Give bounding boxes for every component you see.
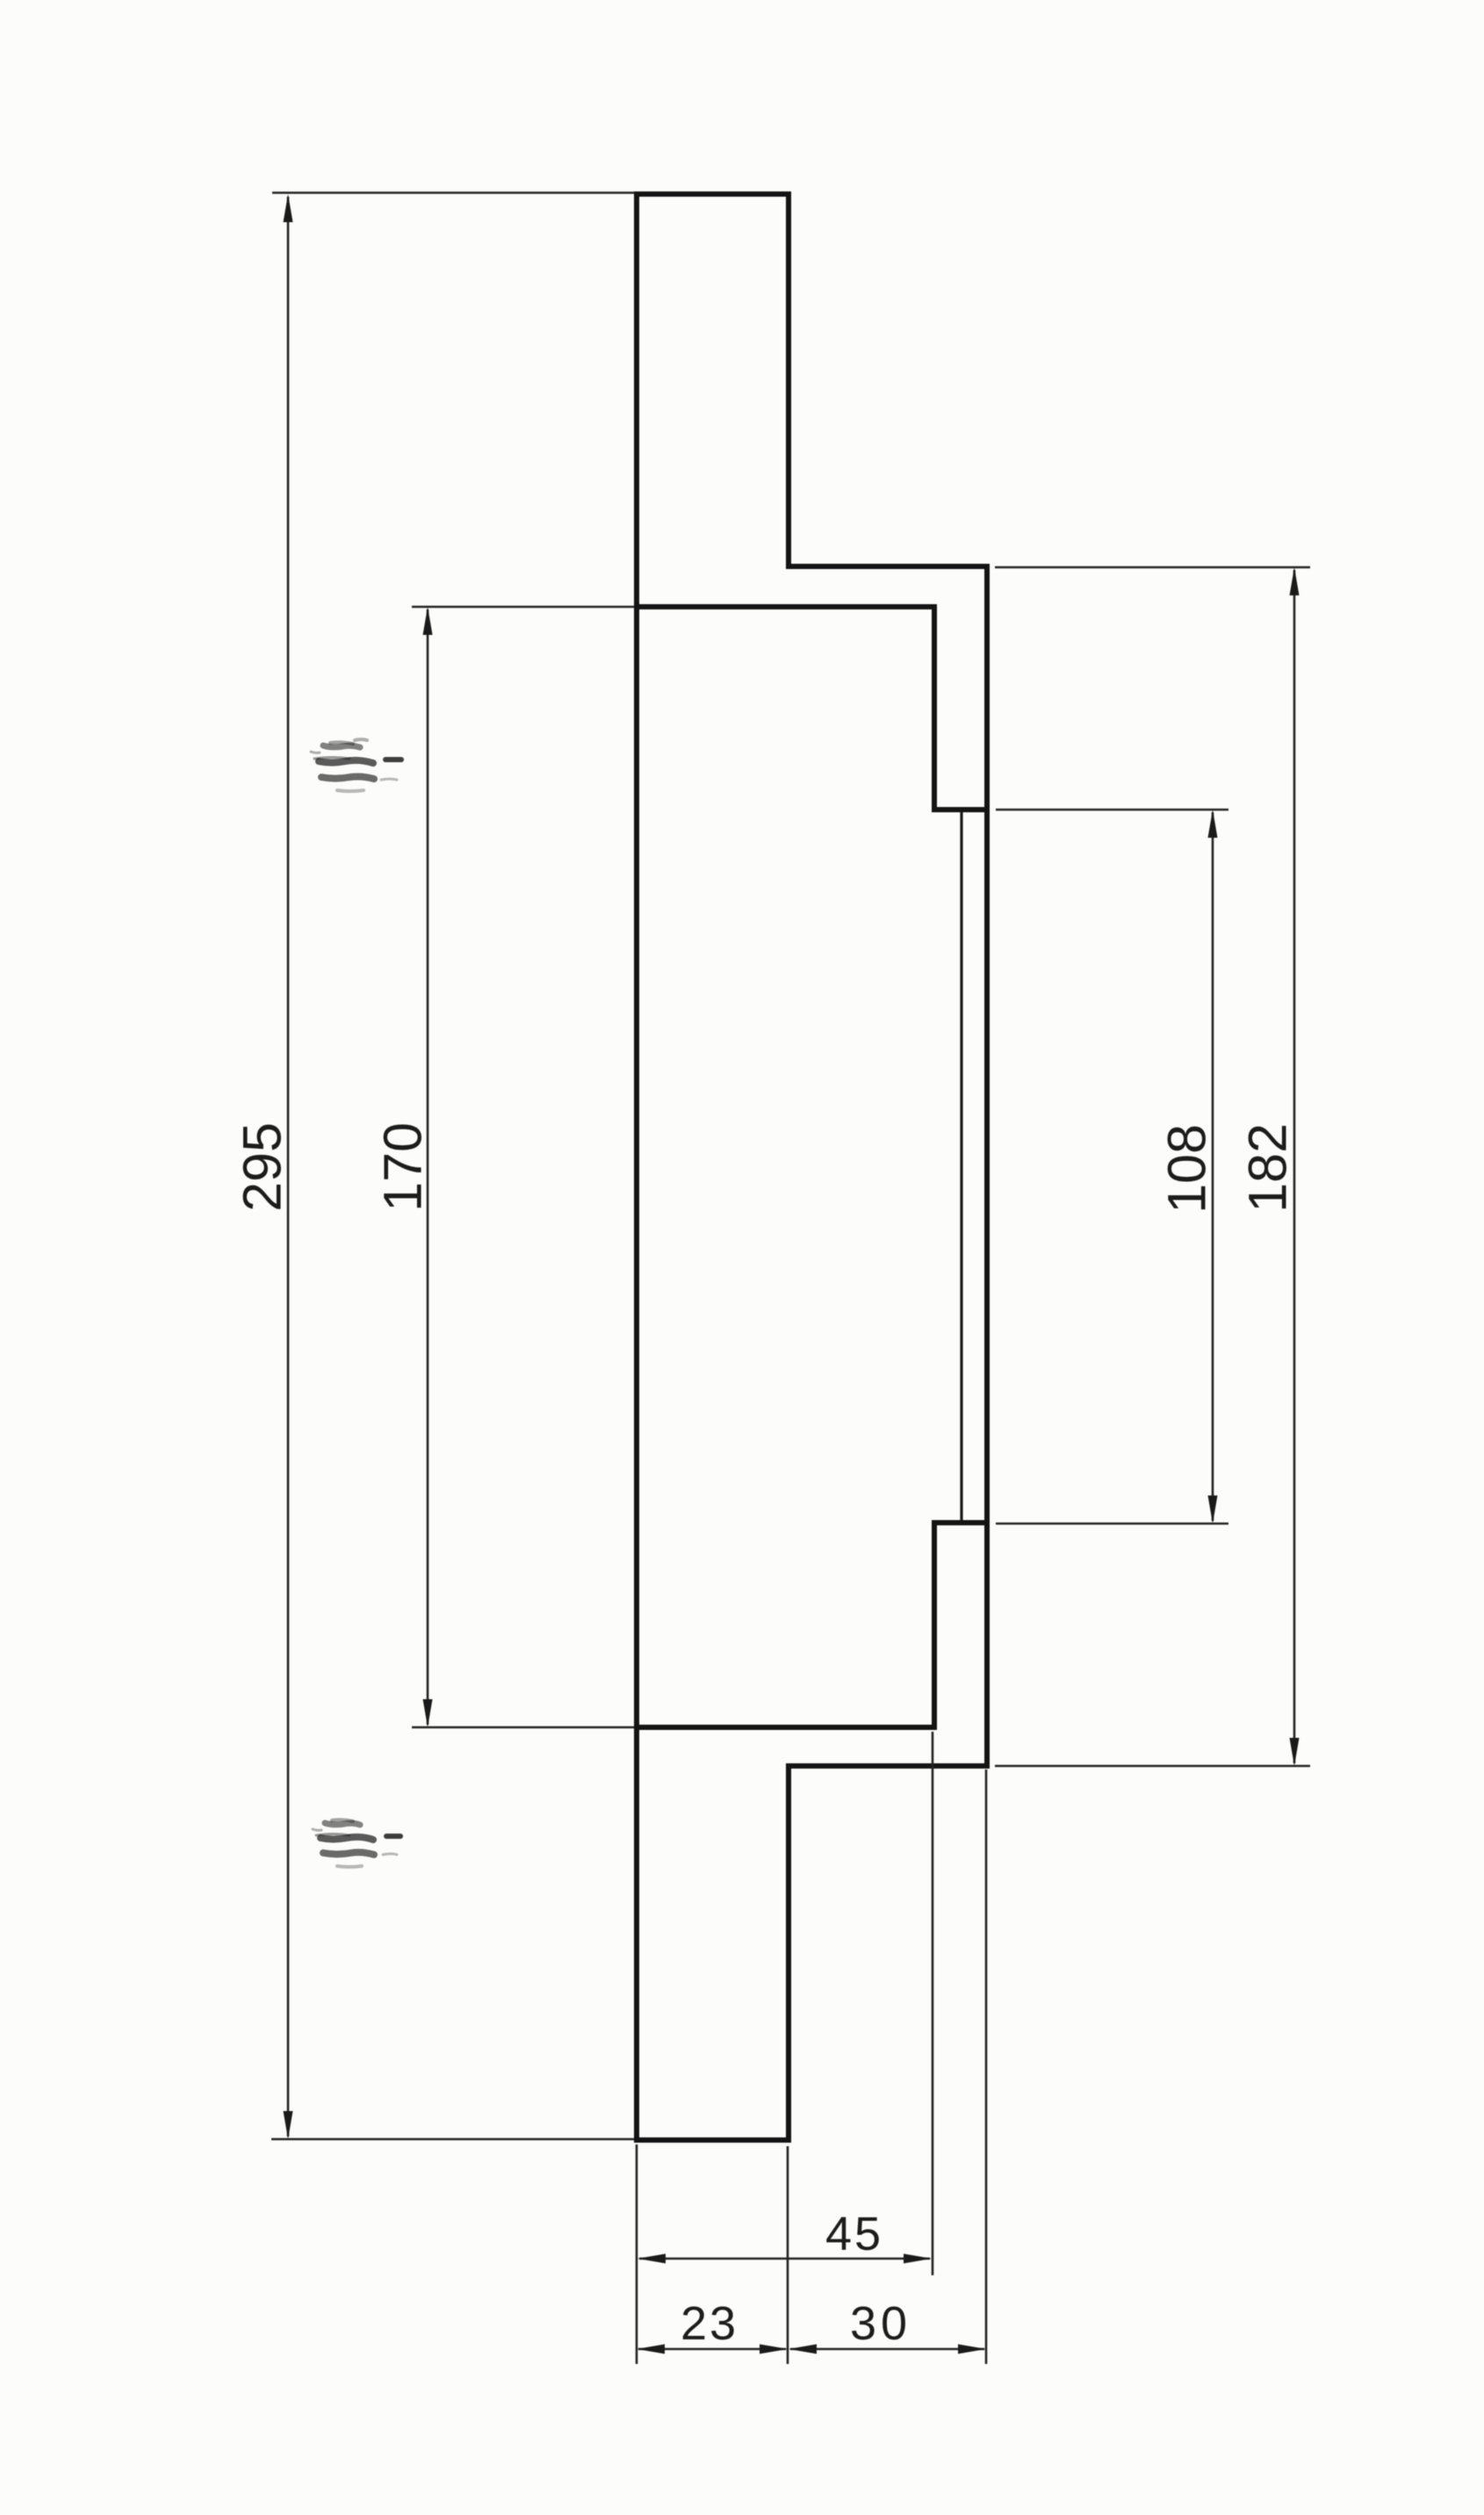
svg-text:30: 30 [850,2297,911,2350]
svg-text:170: 170 [372,1122,432,1212]
svg-text:295: 295 [232,1122,292,1212]
svg-text:108: 108 [1156,1124,1216,1214]
svg-text:182: 182 [1237,1123,1297,1213]
svg-text:45: 45 [825,2208,883,2260]
svg-text:23: 23 [681,2297,738,2350]
